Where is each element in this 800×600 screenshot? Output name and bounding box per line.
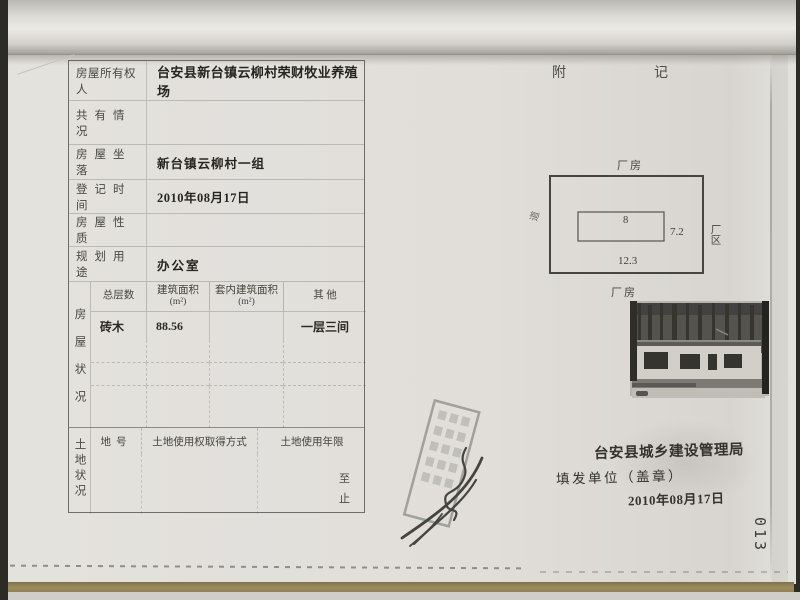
row-value-co-ownership: [147, 101, 364, 144]
col-header-use-term: 土地使用年限: [257, 428, 366, 454]
table-row: 登记时间 2010年08月17日: [69, 180, 364, 214]
col-header-other: 其 他: [283, 282, 366, 312]
fill-issue-unit-label: 填发单位（盖章）: [556, 464, 685, 488]
registry-table: 房屋所有权人 台安县新台镇云柳村荣财牧业养殖场 共有情况 房屋坐落 新台镇云柳村…: [68, 60, 365, 513]
house-condition-section: 房屋状况 总层数 建筑面积 (m²) 套内建筑面积 (m²) 其 他 砖木 88…: [69, 282, 364, 428]
row-value-owner: 台安县新台镇云柳村荣财牧业养殖场: [147, 61, 364, 100]
col-header-building-area: 建筑面积 (m²): [146, 282, 209, 312]
col-header-floors-text: 总层数: [103, 290, 135, 302]
col-header-other-text: 其 他: [313, 290, 337, 302]
floor-surface: [8, 592, 800, 600]
empty-cell: [141, 454, 257, 514]
page-number: 013: [751, 517, 769, 553]
annex-title-char-right: 记: [654, 62, 668, 82]
col-header-acquisition-method: 土地使用权取得方式: [141, 428, 257, 454]
empty-cell: [283, 363, 366, 386]
diagram-label-factory-area: 厂区: [710, 224, 721, 245]
col-header-inner-area: 套内建筑面积 (m²): [209, 282, 283, 312]
row-label-owner: 房屋所有权人: [69, 61, 147, 100]
diagram-label-top: 厂房: [617, 159, 643, 172]
page-fold-shading: [772, 55, 788, 582]
row-label-location: 房屋坐落: [69, 145, 147, 179]
scanned-document-photo: 房屋所有权人 台安县新台镇云柳村荣财牧业养殖场 共有情况 房屋坐落 新台镇云柳村…: [0, 0, 800, 600]
land-status-section: 土地状况 地号 土地使用权取得方式 土地使用年限 至 止: [69, 428, 364, 514]
row-label-planned-use: 规划用途: [69, 247, 147, 281]
table-row: 房屋性质: [69, 214, 364, 247]
official-stamp: [380, 396, 500, 556]
site-plan-diagram: 厂房 厂房 道 厂区 8 7.2 12.3: [505, 152, 740, 309]
land-section-side-label-cell: 土地状况: [69, 428, 91, 514]
house-section-side-label-cell: 房屋状况: [69, 282, 91, 428]
building-area-unit: (m²): [170, 297, 187, 308]
empty-cell: [209, 386, 283, 428]
row-value-registration-date: 2010年08月17日: [147, 180, 364, 213]
building-outline: [578, 212, 664, 241]
term-end-mark: 止: [339, 490, 350, 506]
annex-title-char-left: 附: [552, 62, 566, 82]
dim-side-depth: 7.2: [670, 226, 684, 238]
diagram-label-bottom: 厂房: [611, 286, 637, 299]
empty-cell: [209, 363, 283, 386]
house-section-side-label: 房屋状况: [72, 282, 88, 428]
cell-structure: 砖木: [91, 312, 146, 340]
empty-cell: [146, 363, 209, 386]
curled-pages-top: [8, 0, 796, 55]
empty-cell: [209, 340, 283, 363]
row-value-house-nature: [147, 214, 364, 246]
table-row: 共有情况: [69, 101, 364, 145]
cell-building-area: 88.56: [146, 312, 209, 340]
col-header-floors: 总层数: [91, 282, 146, 312]
issuing-authority: 台安县城乡建设管理局: [594, 438, 745, 463]
table-row: 房屋坐落 新台镇云柳村一组: [69, 145, 364, 180]
inner-area-unit: (m²): [238, 297, 255, 308]
dim-inner-width: 8: [623, 215, 628, 226]
perforation-dashes-right: [540, 571, 788, 573]
building-photo: [628, 301, 773, 406]
row-value-location: 新台镇云柳村一组: [147, 145, 364, 179]
diagram-label-road: 道: [527, 210, 542, 223]
empty-cell: [91, 363, 146, 386]
row-label-co-ownership: 共有情况: [69, 101, 147, 144]
col-header-building-area-text: 建筑面积: [157, 285, 199, 297]
empty-cell: [91, 340, 146, 363]
empty-cell: [91, 454, 141, 514]
row-label-house-nature: 房屋性质: [69, 214, 147, 246]
cell-inner-area: [209, 312, 283, 340]
dim-bottom-width: 12.3: [618, 255, 638, 267]
annex-title: 附 记: [552, 62, 668, 82]
issue-date: 2010年08月17日: [628, 488, 725, 510]
empty-cell: [283, 340, 366, 363]
row-label-registration-date: 登记时间: [69, 180, 147, 213]
empty-cell: [91, 386, 146, 428]
cell-other: 一层三间: [283, 312, 366, 340]
empty-cell: [283, 386, 366, 428]
table-row: 规划用途 办公室: [69, 247, 364, 282]
row-value-planned-use: 办公室: [147, 247, 364, 281]
empty-cell: [146, 340, 209, 363]
empty-cell: [146, 386, 209, 428]
land-section-side-label: 土地状况: [72, 428, 88, 514]
table-row: 房屋所有权人 台安县新台镇云柳村荣财牧业养殖场: [69, 61, 364, 101]
term-to-mark: 至: [339, 470, 350, 486]
col-header-parcel-number: 地号: [91, 428, 141, 454]
col-header-inner-area-text: 套内建筑面积: [215, 285, 278, 297]
